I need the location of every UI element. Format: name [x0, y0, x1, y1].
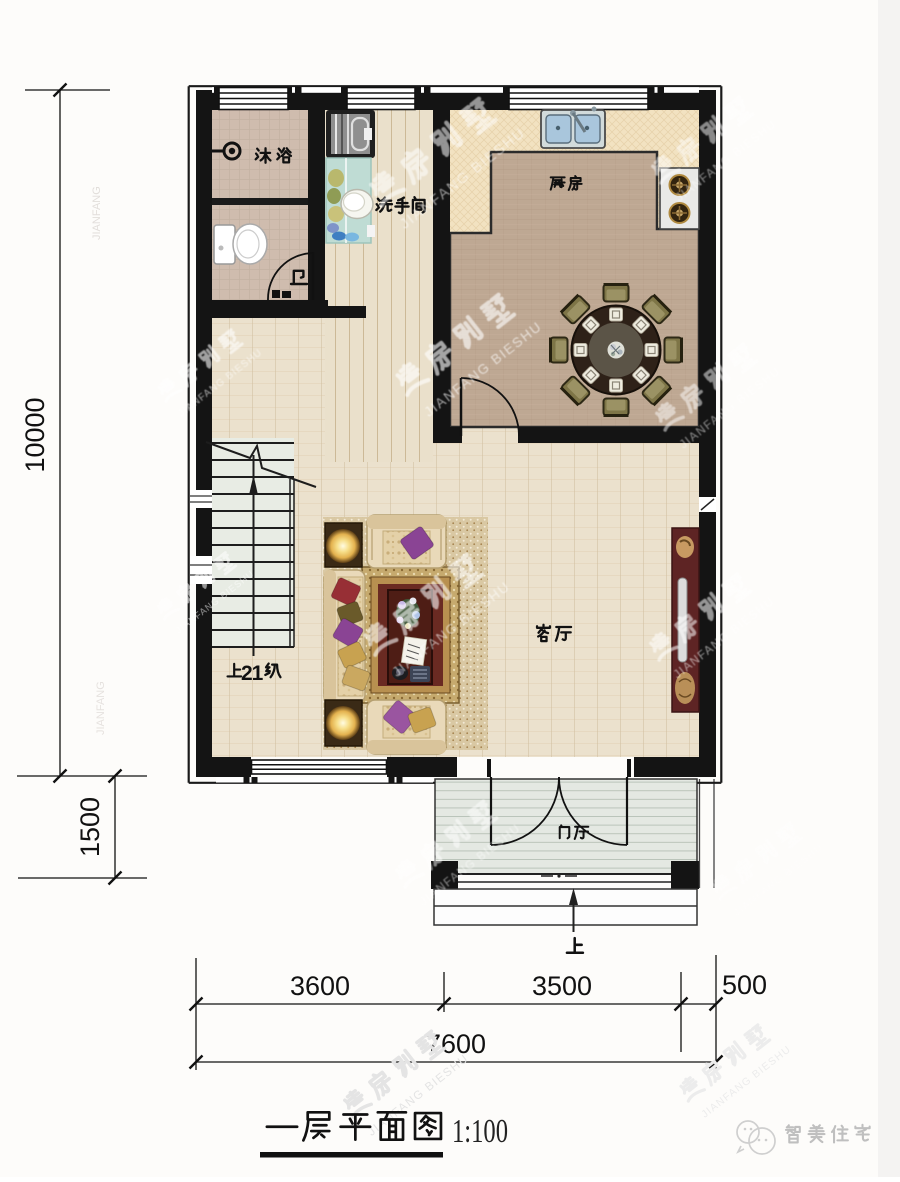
svg-text:1:100: 1:100 [452, 1113, 508, 1150]
svg-text:JIANFANG: JIANFANG [95, 681, 107, 735]
svg-text:500: 500 [722, 970, 767, 1000]
svg-text:1500: 1500 [75, 797, 105, 857]
svg-text:JIANFANG: JIANFANG [91, 186, 103, 240]
svg-text:10000: 10000 [20, 397, 50, 472]
svg-text:21: 21 [241, 662, 264, 685]
svg-text:3600: 3600 [290, 971, 350, 1001]
svg-text:3500: 3500 [532, 971, 592, 1001]
